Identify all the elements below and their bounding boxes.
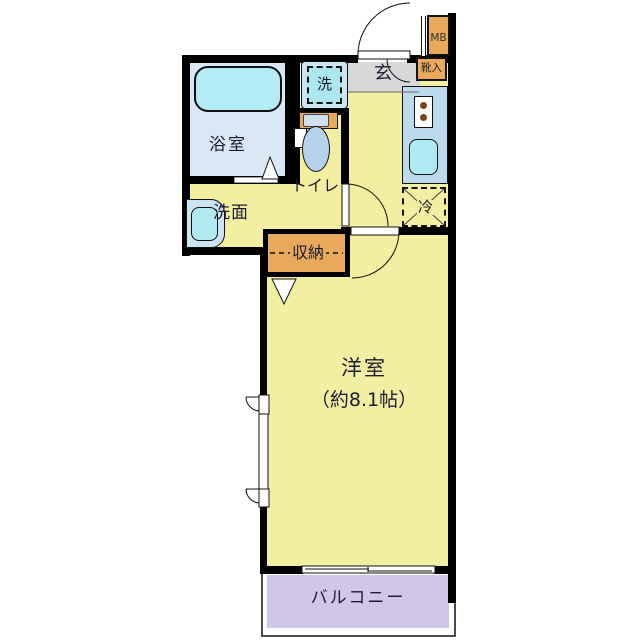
washing-machine-label: 洗	[317, 77, 332, 92]
stove-icon	[414, 96, 433, 128]
wall	[341, 108, 349, 184]
wall	[448, 13, 456, 603]
wall	[285, 55, 300, 184]
wall	[182, 176, 300, 184]
balcony-label: バルコニー	[267, 590, 449, 607]
bathtub	[194, 66, 282, 112]
floor-plan-canvas: 浴室 洗面 トイレ 洗 玄 靴入 MB 冷 収納 洋室 （約8.1帖） バルコニ…	[0, 0, 640, 640]
shoe-cabinet-label: 靴入	[417, 63, 446, 74]
kitchen-sink-icon	[409, 139, 438, 175]
wall	[182, 247, 267, 255]
stove-burner-icon	[420, 102, 427, 109]
wall	[260, 247, 267, 574]
western-room-label: 洋室	[279, 358, 449, 379]
wall	[434, 566, 456, 574]
washroom-label: 洗面	[213, 205, 249, 222]
wall	[260, 566, 303, 574]
refrigerator-label: 冷	[417, 200, 434, 215]
stove-burner-icon	[420, 114, 427, 121]
casement-window-swing-icon	[246, 397, 260, 411]
storage-label: 収納	[290, 245, 326, 261]
toilet-label: トイレ	[291, 178, 339, 194]
western-room-size-label: （約8.1帖）	[279, 391, 449, 410]
meter-box-label: MB	[428, 33, 449, 44]
entrance-door-leaf	[358, 51, 410, 59]
wall	[399, 227, 448, 235]
sliding-door-panels	[305, 567, 432, 572]
toilet-bowl-icon	[302, 126, 330, 172]
bathroom-label: 浴室	[196, 137, 260, 154]
entrance-door-swing-icon	[358, 3, 410, 55]
entrance-label: 玄	[374, 65, 392, 83]
casement-window-swing-icon	[246, 489, 260, 503]
meter-box-pipe-gap	[421, 16, 426, 56]
sliding-door-icon	[302, 566, 435, 573]
